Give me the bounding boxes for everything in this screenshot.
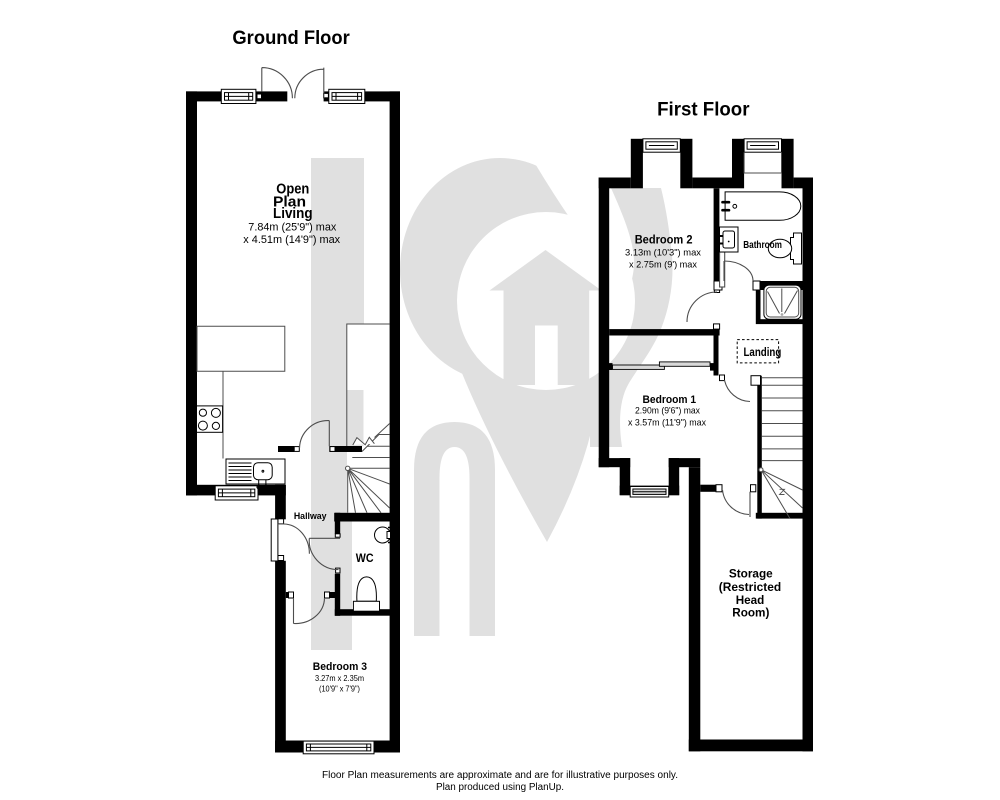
svg-text:Storage: Storage [729, 567, 773, 581]
svg-text:x 4.51m (14'9") max: x 4.51m (14'9") max [243, 234, 340, 246]
svg-text:(Restricted: (Restricted [719, 580, 781, 594]
svg-text:x 2.75m (9') max: x 2.75m (9') max [629, 260, 697, 271]
svg-text:Room): Room) [732, 606, 769, 620]
svg-text:First Floor: First Floor [657, 98, 750, 120]
svg-text:Bedroom 2: Bedroom 2 [635, 234, 693, 246]
svg-text:Bathroom: Bathroom [743, 240, 782, 251]
svg-text:Bedroom 1: Bedroom 1 [642, 394, 696, 406]
svg-text:Floor Plan measurements are ap: Floor Plan measurements are approximate … [322, 770, 678, 781]
svg-text:3.27m x 2.35m: 3.27m x 2.35m [315, 673, 364, 683]
svg-text:Ground Floor: Ground Floor [232, 27, 350, 49]
svg-text:7.84m (25'9") max: 7.84m (25'9") max [248, 222, 336, 234]
svg-text:Landing: Landing [744, 345, 782, 359]
svg-text:Bedroom 3: Bedroom 3 [313, 661, 367, 673]
svg-text:Living: Living [273, 206, 313, 222]
svg-text:(10'9" x 7'9"): (10'9" x 7'9") [319, 683, 360, 693]
svg-text:x 3.57m (11'9") max: x 3.57m (11'9") max [628, 418, 706, 429]
svg-text:3.13m (10'3") max: 3.13m (10'3") max [625, 248, 701, 259]
svg-text:2.90m (9'6") max: 2.90m (9'6") max [635, 406, 700, 417]
svg-text:Hallway: Hallway [294, 511, 327, 522]
svg-text:WC: WC [356, 551, 374, 565]
svg-text:Plan produced using PlanUp.: Plan produced using PlanUp. [436, 782, 564, 793]
